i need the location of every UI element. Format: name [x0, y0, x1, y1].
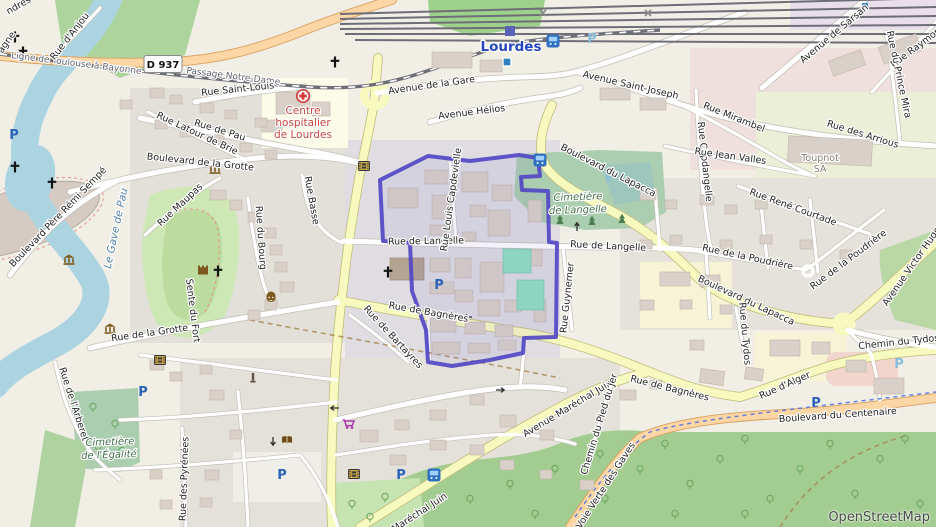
castle-icon — [198, 266, 208, 275]
map-label-de-lourdes: de Lourdes — [274, 129, 332, 141]
map-label-de-langelle: de Langelle — [549, 204, 607, 217]
parking-icon — [811, 396, 821, 411]
bus-stop-icon — [428, 469, 441, 482]
road-shield-text: D 937 — [147, 60, 180, 71]
parking-icon — [894, 357, 904, 372]
tram-halt-icon — [503, 58, 511, 66]
bus-stop-icon — [547, 35, 560, 48]
parking-icon — [396, 468, 406, 483]
cinema-icon — [155, 356, 166, 365]
map-label-centre: Centre — [285, 105, 320, 117]
hospital-icon — [297, 90, 309, 102]
map-label-rue-de-langelle: Rue de Langelle — [388, 235, 464, 247]
map-label-hospitalier: hospitalier — [275, 117, 331, 129]
library-icon — [282, 436, 292, 443]
cinema-icon — [349, 470, 360, 479]
parking-icon — [9, 128, 19, 143]
cinema-icon — [359, 162, 370, 171]
city-label-lourdes: Lourdes — [480, 39, 541, 55]
map-label-cimeti-re: Cimetière — [85, 435, 134, 449]
parking-icon — [434, 278, 444, 293]
map-label-cimeti-re: Cimetière — [553, 190, 602, 204]
parking-icon — [138, 385, 148, 400]
parking-icon — [587, 32, 597, 47]
map-svg: P — [0, 0, 936, 527]
road-shield-d937: D 937 — [144, 56, 182, 73]
attribution-link[interactable]: OpenStreetMap — [828, 510, 930, 525]
train-station-icon — [505, 26, 515, 36]
bus-stop-icon — [534, 154, 547, 167]
parking-icon — [277, 468, 287, 483]
map-label-toupnot: Toupnot — [800, 153, 839, 164]
map-canvas[interactable]: P — [0, 0, 936, 527]
map-label-sa: SA — [814, 164, 827, 175]
theatre-icon — [267, 292, 276, 303]
